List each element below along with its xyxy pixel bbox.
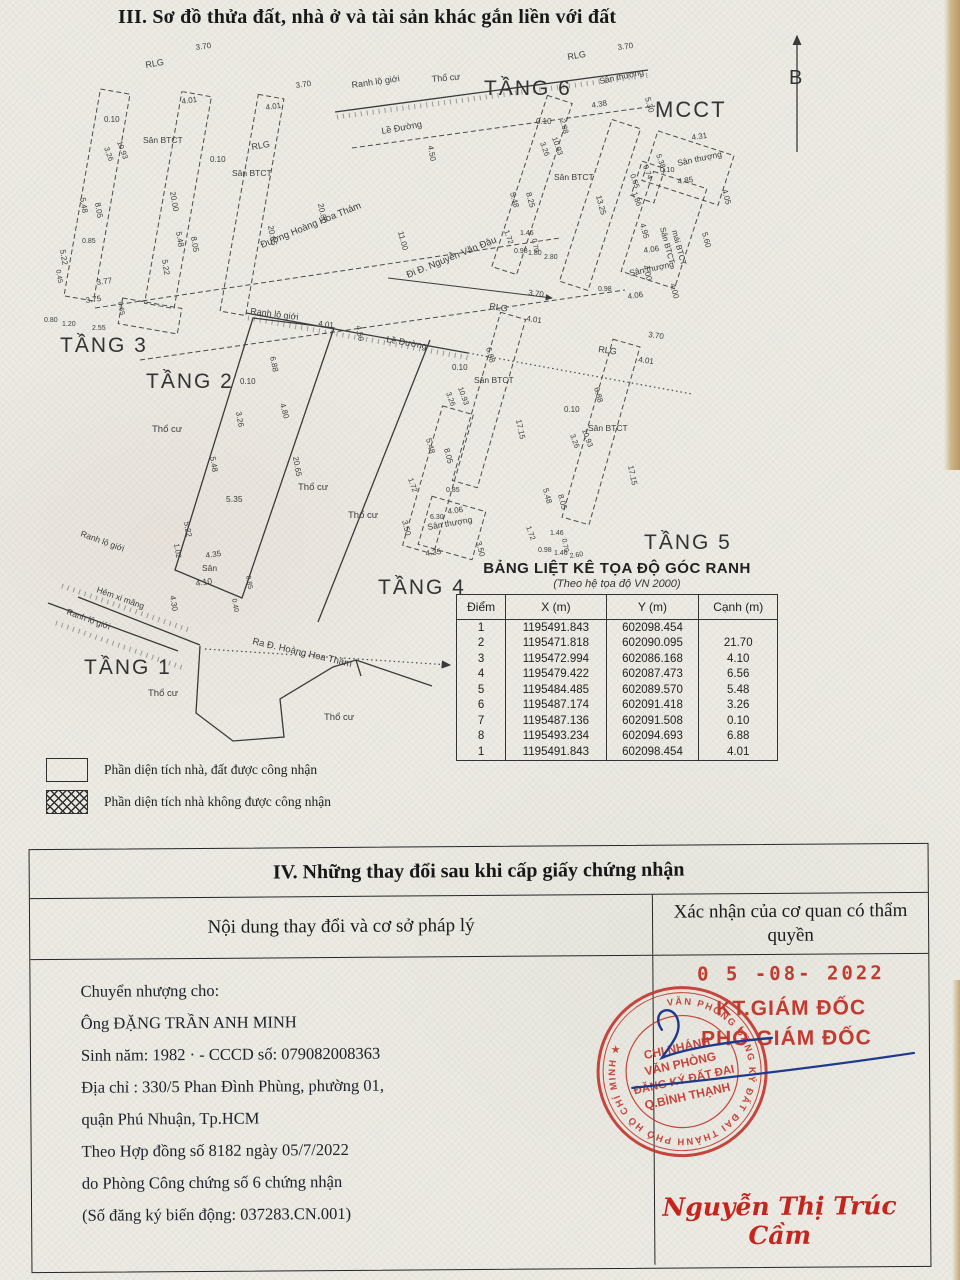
diagram-dimension-label: 0.85 [82,238,96,245]
legend-item-unrecognized: Phần diện tích nhà không được công nhận [46,790,331,814]
coordinate-table-grid: ĐiểmX (m)Y (m)Cạnh (m) 11195491.84360209… [456,594,778,761]
change-content: Chuyển nhượng cho:Ông ĐẶNG TRẦN ANH MINH… [30,956,654,1269]
diagram-dimension-label: 2.60 [569,551,584,560]
diagram-line [468,353,692,394]
diagram-line [62,586,192,631]
diagram-dimension-label: 3.50 [474,540,487,558]
diagram-dimension-label: 0.85 [446,487,460,494]
diagram-dimension-label: 4.38 [591,98,608,110]
coord-table-body: 11195491.843602098.45421195471.818602090… [457,620,778,761]
change-content-line: Chuyển nhượng cho: [80,972,642,1008]
diagram-dimension-label: 0.80 [44,317,58,324]
diagram-dimension-label: 3.26 [102,146,115,163]
diagram-dimension-label: 3.75 [85,294,102,305]
diagram-dimension-label: 6.30 [430,514,444,521]
diagram-dimension-label: Ranh lộ giới [250,306,299,322]
diagram-zone-label: MCCT [655,97,727,122]
coordinate-table: BẢNG LIỆT KÊ TỌA ĐỘ GÓC RANH (Theo hệ tọ… [456,560,778,761]
diagram-dimension-label: RLG [251,139,271,152]
coordinate-table-title: BẢNG LIỆT KÊ TỌA ĐỘ GÓC RANH [456,560,778,577]
diagram-dimension-label: RLG [489,301,509,313]
diagram-dimension-label: 5.22 [182,521,194,538]
coord-row: 11195491.843602098.454 [457,620,778,636]
diagram-dimension-label: 5.22 [58,249,70,266]
coord-row: 81195493.234602094.6936.88 [457,729,778,745]
diagram-dimension-label: 4.35 [425,547,442,558]
signature-ink [614,998,925,1120]
diagram-dimension-label: 5.48 [508,191,521,209]
diagram-dimension-label: 1.46 [550,530,564,537]
diagram-dimension-label: Sân BTCT [143,135,183,145]
diagram-dimension-label: Ra Đ. Hoàng Hoa Thám [251,636,353,670]
diagram-dimension-label: 13.25 [594,194,608,216]
diagram-dimension-label: 3.26 [234,411,246,428]
diagram-line [175,318,334,598]
diagram-dimension-label: 5.22 [160,259,172,276]
approver-name: Nguyễn Thị Trúc Cầm [635,1191,924,1251]
coord-row: 21195471.818602090.09521.70 [457,636,778,652]
diagram-dimension-label: 4.00 [641,264,654,282]
diagram-dimension-label: 4.00 [668,282,681,300]
diagram-dimension-label: 2.80 [544,254,558,261]
diagram-dimension-label: 0.10 [104,115,120,124]
scanned-land-certificate-page: III. Sơ đồ thửa đất, nhà ở và tài sản kh… [0,0,960,1280]
section4-col-left-header: Nội dung thay đổi và cơ sở pháp lý [30,895,652,959]
diagram-dimension-label: Ranh lộ giới [351,73,400,90]
diagram-dimension-label: 10.93 [550,136,565,157]
coord-row: 61195487.174602091.4183.26 [457,698,778,714]
diagram-dimension-label: 1.80 [528,250,542,257]
coord-row: 51195484.485602089.5705.48 [457,682,778,698]
diagram-dimension-label: 6.88 [592,386,605,404]
diagram-dimension-label: 4.05 [720,188,733,206]
diagram-line [388,278,552,298]
diagram-dimension-label: Lề Đường [386,334,428,351]
diagram-dimension-label: 4.31 [691,131,708,142]
diagram-dimension-label: 3.26 [568,433,581,450]
diagram-dimension-label: 4.01 [181,95,198,106]
diagram-dimension-label: 3.26 [444,391,457,408]
diagram-dimension-label: 8.05 [556,493,569,511]
building-strip-outline [64,89,130,301]
coord-header-row: ĐiểmX (m)Y (m)Cạnh (m) [457,595,778,620]
diagram-line [352,106,655,148]
diagram-dimension-label: 0.98 [514,248,528,255]
diagram-line [318,340,430,622]
diagram-dimension-label: 0.98 [538,547,552,554]
diagram-dimension-label: 3.70 [295,79,312,90]
diagram-dimension-label: 3.77 [96,276,113,287]
diagram-dimension-label: Đi Đ. Nguyễn Văn Đậu [405,235,498,281]
diagram-dimension-label: Thổ cư [152,424,183,435]
diagram-dimension-label: 20.65 [266,225,278,247]
coord-row: 41195479.422602087.4736.56 [457,667,778,683]
legend: Phần diện tích nhà, đất được công nhận P… [46,758,331,822]
coord-col-header: X (m) [506,595,606,620]
diagram-dimension-label: 0.65 [628,173,641,190]
diagram-dimension-label: 8.05 [442,447,455,465]
diagram-zone-label: TẦNG 5 [644,531,732,554]
diagram-dimension-label: Sân thượng [676,149,723,168]
diagram-dimension-label: 0.74 [641,164,654,181]
diagram-dimension-label: 3.50 [400,519,413,537]
legend-label: Phần diện tích nhà, đất được công nhận [104,762,317,778]
diagram-dimension-label: 6.88 [484,346,497,364]
section4-content-row: Chuyển nhượng cho:Ông ĐẶNG TRẦN ANH MINH… [30,954,930,1269]
diagram-dimension-label: 20.65 [291,456,303,478]
diagram-dimension-label: 2.88 [558,118,570,134]
building-strip-outline [492,95,572,274]
diagram-dimension-label: 0.10 [452,363,468,372]
coord-row: 31195472.994602086.1684.10 [457,651,778,667]
diagram-dimension-label: Thổ cư [348,510,379,521]
diagram-dimension-label: 10.93 [580,428,595,449]
diagram-line [196,646,361,741]
diagram-dimension-label: 4.30 [168,595,180,612]
diagram-dimension-label: 1.86 [630,191,643,208]
diagram-dimension-label: 11.00 [396,230,410,252]
section4-header-row: Nội dung thay đổi và cơ sở pháp lý Xác n… [30,893,928,960]
diagram-dimension-label: Thổ cư [431,72,460,84]
diagram-dimension-label: Lề Đường [381,119,423,136]
diagram-dimension-label: 1.46 [554,550,568,557]
coord-col-header: Điểm [457,595,506,620]
diagram-dimension-label: 5.48 [541,487,554,505]
diagram-dimension-label: 1.02 [172,543,183,559]
building-strip-outline [631,161,665,203]
diagram-dimension-label: 8.25 [524,191,537,209]
diagram-dimension-label: 8.05 [93,202,105,219]
diagram-dimension-label: 0.10 [240,377,256,386]
diagram-dimension-label: Sân thượng [427,514,474,532]
diagram-line [140,290,625,360]
diagram-dimension-label: mái BTCT [670,229,688,266]
diagram-dimension-label: 5.48 [174,231,186,248]
diagram-dimension-label: 1.72 [406,477,419,494]
diagram-dimension-label: 5.30 [643,96,656,114]
diagram-dimension-label: 4.80 [278,402,291,420]
diagram-dimension-label: 17.15 [626,465,639,487]
diagram-dimension-label: RLG [145,57,165,70]
diagram-zone-label: B [789,67,804,89]
diagram-dimension-label: 0.70 [560,538,569,553]
diagram-dimension-label: 10.93 [115,140,130,161]
diagram-dimension-label: 1.72 [524,525,537,542]
legend-label: Phần diện tích nhà không được công nhận [104,794,331,810]
change-content-line: Sinh năm: 1982 · - CCCD số: 079082008363 [81,1036,643,1072]
diagram-dimension-label: 3.70 [195,41,212,52]
legend-swatch-plain [46,758,88,782]
diagram-dimension-label: 3.70 [648,330,665,341]
diagram-dimension-label: 4.06 [643,244,660,255]
diagram-line [248,318,470,358]
diagram-zone-label: TẦNG 6 [484,77,572,100]
change-content-line: (Số đăng ký biến động: 037283.CN.001) [82,1196,644,1232]
diagram-dimension-label: 4.01 [638,355,655,366]
diagram-dimension-label: 0.10 [536,117,552,126]
coord-col-header: Cạnh (m) [699,595,778,620]
building-strip-outline [562,339,640,525]
building-strip-outline [403,406,474,554]
diagram-line [246,313,468,353]
diagram-dimension-label: Sân BTCT [554,172,594,182]
diagram-dimension-label: 1.20 [62,321,76,328]
diagram-dimension-label: 5.38 [654,153,667,170]
diagram-dimension-label: 4.01 [526,314,543,325]
diagram-dimension-label: Ranh lộ giới [65,606,112,631]
building-strip-outline [452,312,525,487]
diagram-dimension-label: Đường Hoàng Hoa Thám [259,200,363,250]
diagram-dimension-label: 8.05 [189,236,201,253]
diagram-dimension-label: Thổ cư [324,712,355,723]
diagram-dimension-label: 0.10 [210,155,226,164]
section3-title: III. Sơ đồ thửa đất, nhà ở và tài sản kh… [118,6,616,29]
diagram-dimension-label: Thổ cư [298,482,329,493]
diagram-dimension-label: 4.06 [627,290,644,301]
legend-swatch-crosshatch [46,790,88,814]
building-strip-outline [220,94,284,315]
diagram-dimension-label: 0.70 [530,238,539,253]
building-strip-outline [559,120,640,291]
diagram-line [48,603,178,651]
diagram-dimension-label: Thổ cư [148,688,179,699]
diagram-dimension-label: 5.48 [208,456,220,473]
legend-item-recognized: Phần diện tích nhà, đất được công nhận [46,758,331,782]
approval-cell: 0 5 -08- 2022 KT.GIÁM ĐỐC PHÓ GIÁM ĐỐC V… [652,954,930,1265]
section4-title-row: IV. Những thay đổi sau khi cấp giấy chứn… [30,844,928,899]
diagram-dimension-label: Sân thượng [628,259,675,278]
diagram-dimension-label: 0.40 [230,598,239,613]
change-content-line: Ông ĐẶNG TRẦN ANH MINH [81,1004,643,1040]
diagram-dimension-label: Ranh lộ giới [79,528,126,553]
building-strip-outline [118,298,182,334]
diagram-dimension-label: 4.06 [447,505,464,516]
diagram-line [335,70,648,112]
building-strip-outline [145,92,212,309]
change-content-line: Địa chỉ : 330/5 Phan Đình Phùng, phường … [81,1068,643,1104]
diagram-zone-label: TẦNG 2 [146,370,234,393]
photo-background-edge-bottom [952,980,960,1280]
diagram-dimension-label: 5.35 [226,494,243,504]
diagram-dimension-label: Sân BTCT [658,226,676,265]
diagram-dimension-label: 4.01 [265,101,282,112]
diagram-dimension-label: 0.98 [598,286,612,293]
section4-table: IV. Những thay đổi sau khi cấp giấy chứn… [29,843,932,1273]
diagram-dimension-label: Sân [202,563,217,573]
diagram-line [356,660,432,686]
diagram-dimension-label: 4.01 [318,319,335,330]
diagram-line [95,238,560,308]
photo-background-edge [944,0,960,470]
diagram-dimension-label: 3.70 [617,41,634,52]
diagram-dimension-label: Sân BTCT [588,423,628,433]
diagram-dimension-label: 4.85 [677,175,694,186]
change-content-line: quận Phú Nhuận, Tp.HCM [81,1100,643,1136]
diagram-dimension-label: 1.72 [502,229,515,246]
diagram-dimension-label: 2.55 [92,325,106,332]
diagram-dimension-label: 3.70 [528,288,545,299]
coord-row: 11195491.843602098.4544.01 [457,744,778,760]
diagram-zone-label: TẦNG 4 [378,576,466,599]
diagram-dimension-label: 5.60 [700,231,713,249]
diagram-dimension-label: 0.10 [660,165,675,174]
change-content-line: do Phòng Công chứng số 6 chứng nhận [82,1164,644,1200]
diagram-dimension-label: RLG [598,344,618,356]
building-strip-outline [621,171,707,288]
diagram-dimension-label: 4.95 [638,222,651,240]
diagram-zone-label: TẦNG 1 [84,656,172,679]
diagram-dimension-label: Hẻm xi măng [95,584,146,611]
section4-col-right-header: Xác nhận của cơ quan có thẩm quyền [652,893,928,955]
diagram-dimension-label: Sân BTCT [232,168,272,178]
diagram-dimension-label: 0.45 [54,269,63,284]
diagram-dimension-label: 6.88 [268,356,280,374]
coord-col-header: Y (m) [606,595,699,620]
change-content-line: Theo Hợp đồng số 8182 ngày 05/7/2022 [82,1132,644,1168]
diagram-dimension-label: 3.26 [538,141,551,158]
diagram-dimension-label: 4.35 [205,549,222,560]
diagram-dimension-label: 20.00 [168,191,180,213]
diagram-line [337,75,650,117]
diagram-dimension-label: 0.85 [244,575,253,590]
diagram-dimension-label: 0.10 [564,405,580,414]
diagram-dimension-label: 10.93 [456,386,471,407]
coord-row: 71195487.136602091.5080.10 [457,713,778,729]
diagram-dimension-label: 1.46 [520,230,534,237]
diagram-dimension-label: 5.48 [78,197,90,214]
section4-title: IV. Những thay đổi sau khi cấp giấy chứn… [273,858,685,884]
diagram-dimension-label: 4.50 [426,145,438,162]
diagram-dimension-label: 4.50 [354,325,366,342]
diagram-line [205,649,450,665]
diagram-dimension-label: 17.15 [514,419,527,441]
building-strip-outline [642,131,734,205]
diagram-line [56,623,186,669]
coordinate-table-subtitle: (Theo hệ tọa độ VN 2000) [456,578,778,590]
diagram-dimension-label: 0.65 [116,301,125,316]
diagram-dimension-label: Sân thượng [598,67,645,86]
diagram-dimension-label: 4.10 [195,576,213,588]
diagram-dimension-label: 5.48 [424,437,437,455]
diagram-dimension-label: Sân BTCT [474,375,514,385]
diagram-zone-label: TẦNG 3 [60,334,148,357]
diagram-dimension-label: 20.00 [316,203,329,225]
diagram-line [78,597,200,645]
diagram-dimension-label: RLG [567,49,587,62]
building-strip-outline [418,496,486,559]
